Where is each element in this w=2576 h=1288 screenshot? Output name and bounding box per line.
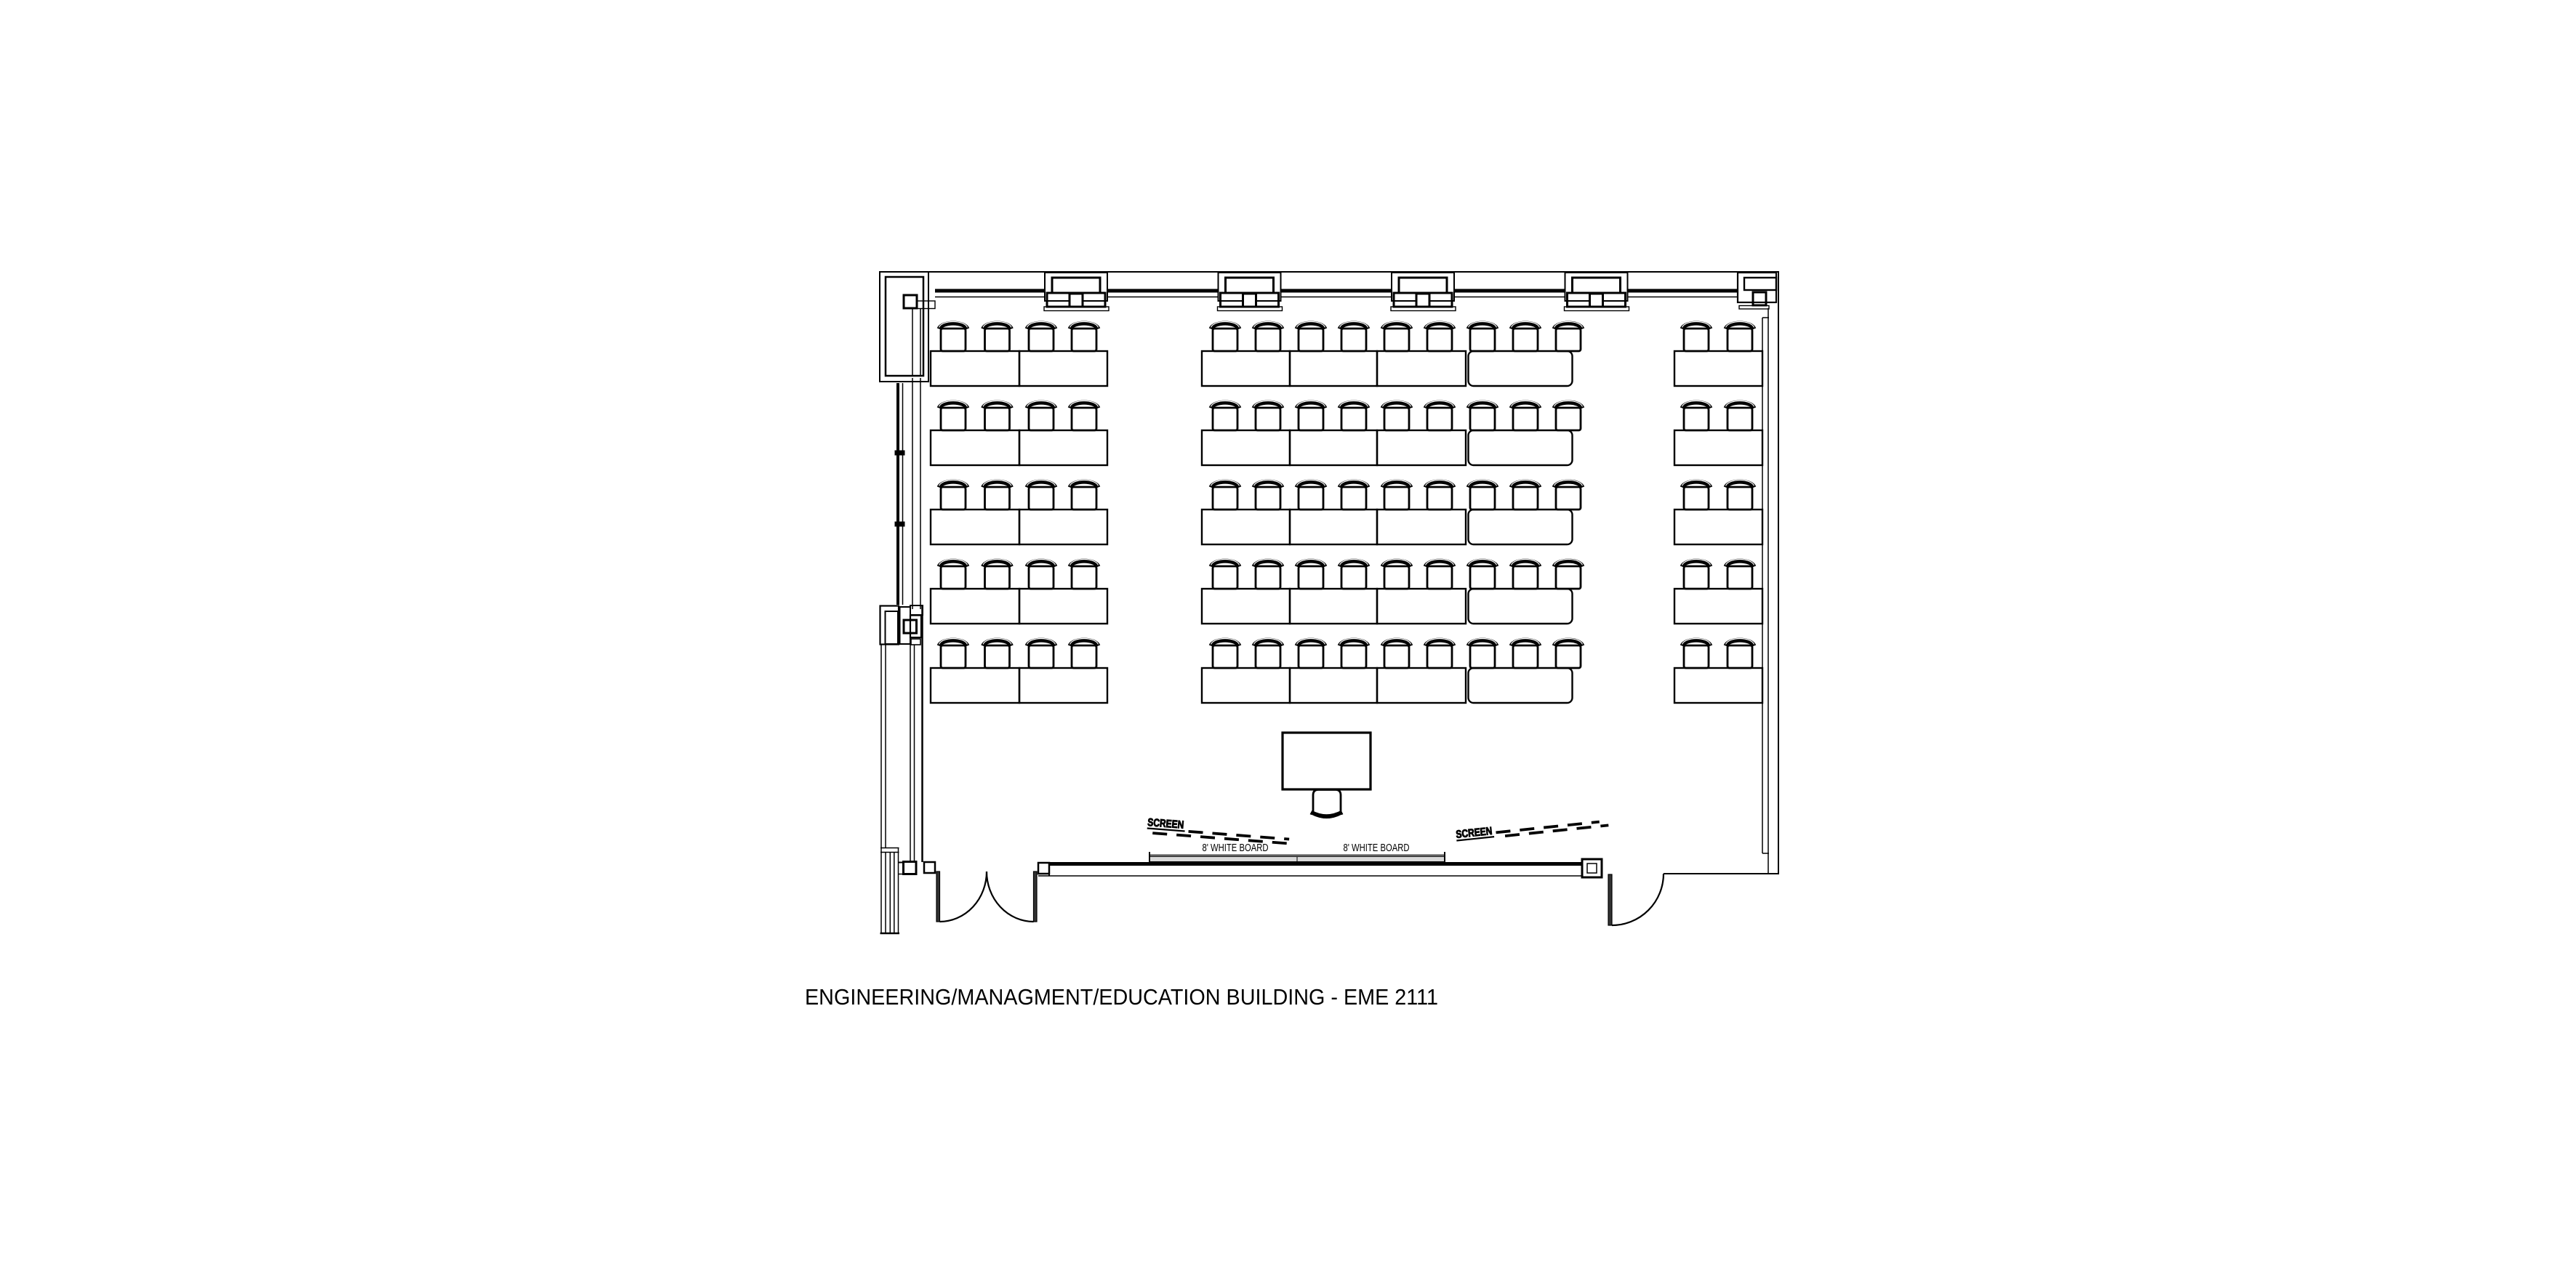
svg-text:8' WHITE BOARD: 8' WHITE BOARD [1203, 842, 1269, 854]
svg-text:ENGINEERING/MANAGMENT/EDUCATIO: ENGINEERING/MANAGMENT/EDUCATION BUILDING… [805, 984, 1438, 1010]
svg-text:8' WHITE BOARD: 8' WHITE BOARD [1344, 842, 1410, 854]
